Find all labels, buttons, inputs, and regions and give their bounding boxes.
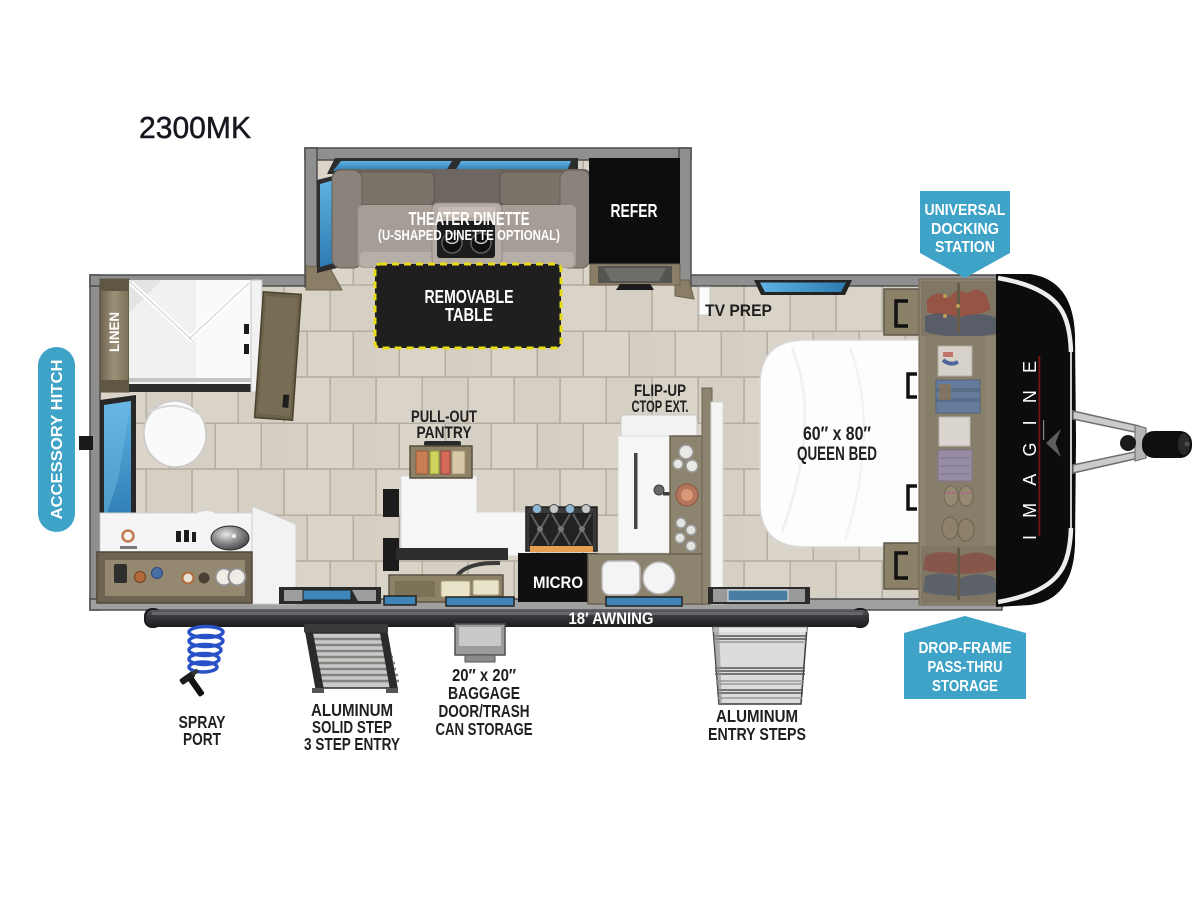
svg-text:TABLE: TABLE (445, 305, 493, 325)
svg-text:60″ x 80″: 60″ x 80″ (803, 424, 871, 445)
svg-text:STORAGE: STORAGE (932, 678, 998, 695)
svg-text:DOCKING: DOCKING (931, 221, 999, 238)
svg-text:3 STEP ENTRY: 3 STEP ENTRY (304, 734, 400, 754)
svg-text:DOOR/TRASH: DOOR/TRASH (439, 701, 530, 721)
svg-text:MICRO: MICRO (533, 573, 583, 592)
svg-text:TV PREP: TV PREP (705, 301, 772, 320)
svg-text:BAGGAGE: BAGGAGE (448, 683, 520, 703)
svg-text:REMOVABLE: REMOVABLE (425, 287, 514, 307)
svg-text:UNIVERSAL: UNIVERSAL (925, 202, 1006, 219)
svg-text:CTOP EXT.: CTOP EXT. (632, 397, 689, 416)
svg-text:ALUMINUM: ALUMINUM (716, 706, 798, 726)
svg-text:CAN STORAGE: CAN STORAGE (436, 719, 533, 739)
svg-text:REFER: REFER (611, 201, 658, 221)
svg-text:2300MK: 2300MK (139, 110, 251, 145)
svg-text:THEATER DINETTE: THEATER DINETTE (409, 209, 530, 229)
svg-text:ENTRY STEPS: ENTRY STEPS (708, 724, 806, 744)
svg-text:LINEN: LINEN (107, 312, 122, 352)
svg-text:(U-SHAPED DINETTE OPTIONAL): (U-SHAPED DINETTE OPTIONAL) (378, 228, 560, 244)
svg-text:20″ x 20″: 20″ x 20″ (452, 665, 517, 685)
svg-text:ACCESSORY HITCH: ACCESSORY HITCH (49, 360, 66, 520)
svg-text:DROP-FRAME: DROP-FRAME (919, 640, 1012, 657)
svg-text:QUEEN BED: QUEEN BED (797, 444, 877, 465)
svg-text:18′ AWNING: 18′ AWNING (569, 609, 654, 628)
svg-text:PASS-THRU: PASS-THRU (928, 659, 1003, 676)
svg-text:STATION: STATION (935, 239, 995, 256)
svg-text:PORT: PORT (183, 729, 221, 749)
svg-text:PANTRY: PANTRY (417, 423, 473, 442)
